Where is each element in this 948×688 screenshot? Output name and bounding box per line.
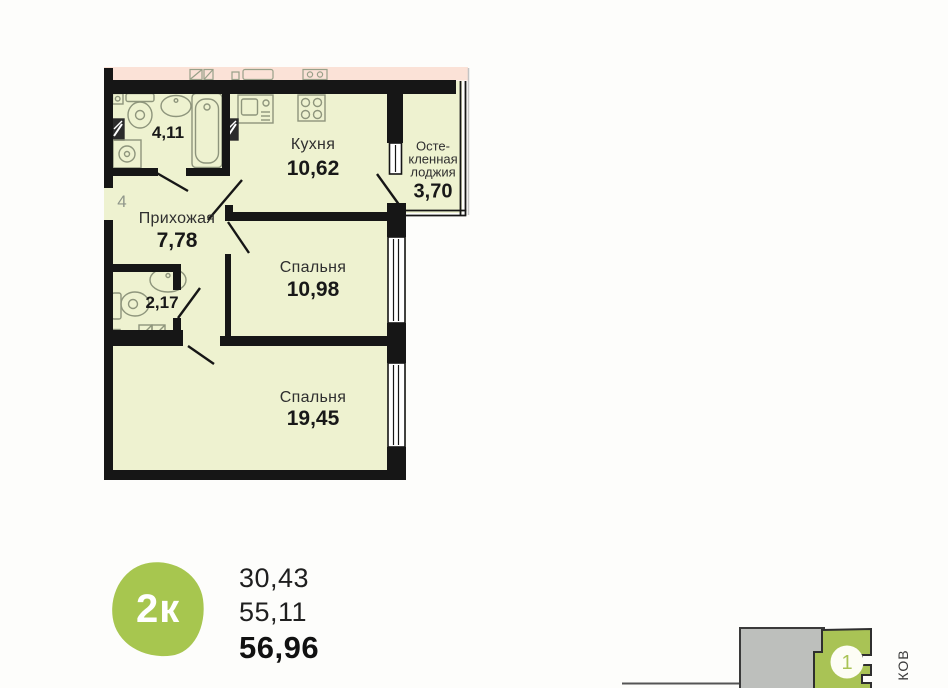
- bedroom2-area: 19,45: [287, 407, 340, 431]
- secondary-area-value: 55,11: [239, 597, 307, 628]
- bathroom-main-area: 4,11: [152, 123, 184, 143]
- floor-plan: 4,11 Кухня 10,62 Осте- кленная лоджия 3,…: [0, 0, 948, 560]
- kitchen-area: 10,62: [287, 157, 340, 181]
- bedroom2-label: Спальня: [280, 389, 346, 407]
- rooms-count-label: 2к: [136, 587, 180, 632]
- radiator-icon: [112, 119, 124, 140]
- entrance-floor-number: 4: [117, 192, 126, 212]
- hallway-area: 7,78: [157, 229, 198, 253]
- loggia-area: 3,70: [414, 181, 453, 204]
- window-kitchen-loggia: [390, 143, 402, 174]
- neighbor-apartment-strip: [104, 67, 468, 81]
- site-plan: 1 КОВ: [600, 600, 948, 688]
- loggia-label-line3: лоджия: [410, 165, 455, 180]
- living-area-value: 30,43: [239, 563, 309, 594]
- site-street-label: КОВ: [895, 649, 911, 680]
- window-bedroom2: [388, 363, 405, 447]
- site-building-neighbor: [740, 628, 824, 688]
- window-bedroom1: [388, 237, 405, 323]
- bedroom1-area: 10,98: [287, 278, 340, 302]
- bathroom-small-area: 2,17: [145, 293, 178, 313]
- hallway-label: Прихожая: [139, 210, 216, 228]
- bedroom1-label: Спальня: [280, 259, 346, 277]
- site-building-number: 1: [841, 652, 852, 674]
- kitchen-label: Кухня: [291, 136, 335, 154]
- floor-plan-drawing: [0, 0, 948, 560]
- listing-floorplan-view: 4,11 Кухня 10,62 Осте- кленная лоджия 3,…: [0, 0, 948, 688]
- total-area-value: 56,96: [239, 630, 319, 666]
- rooms-count-badge: 2к: [106, 556, 210, 663]
